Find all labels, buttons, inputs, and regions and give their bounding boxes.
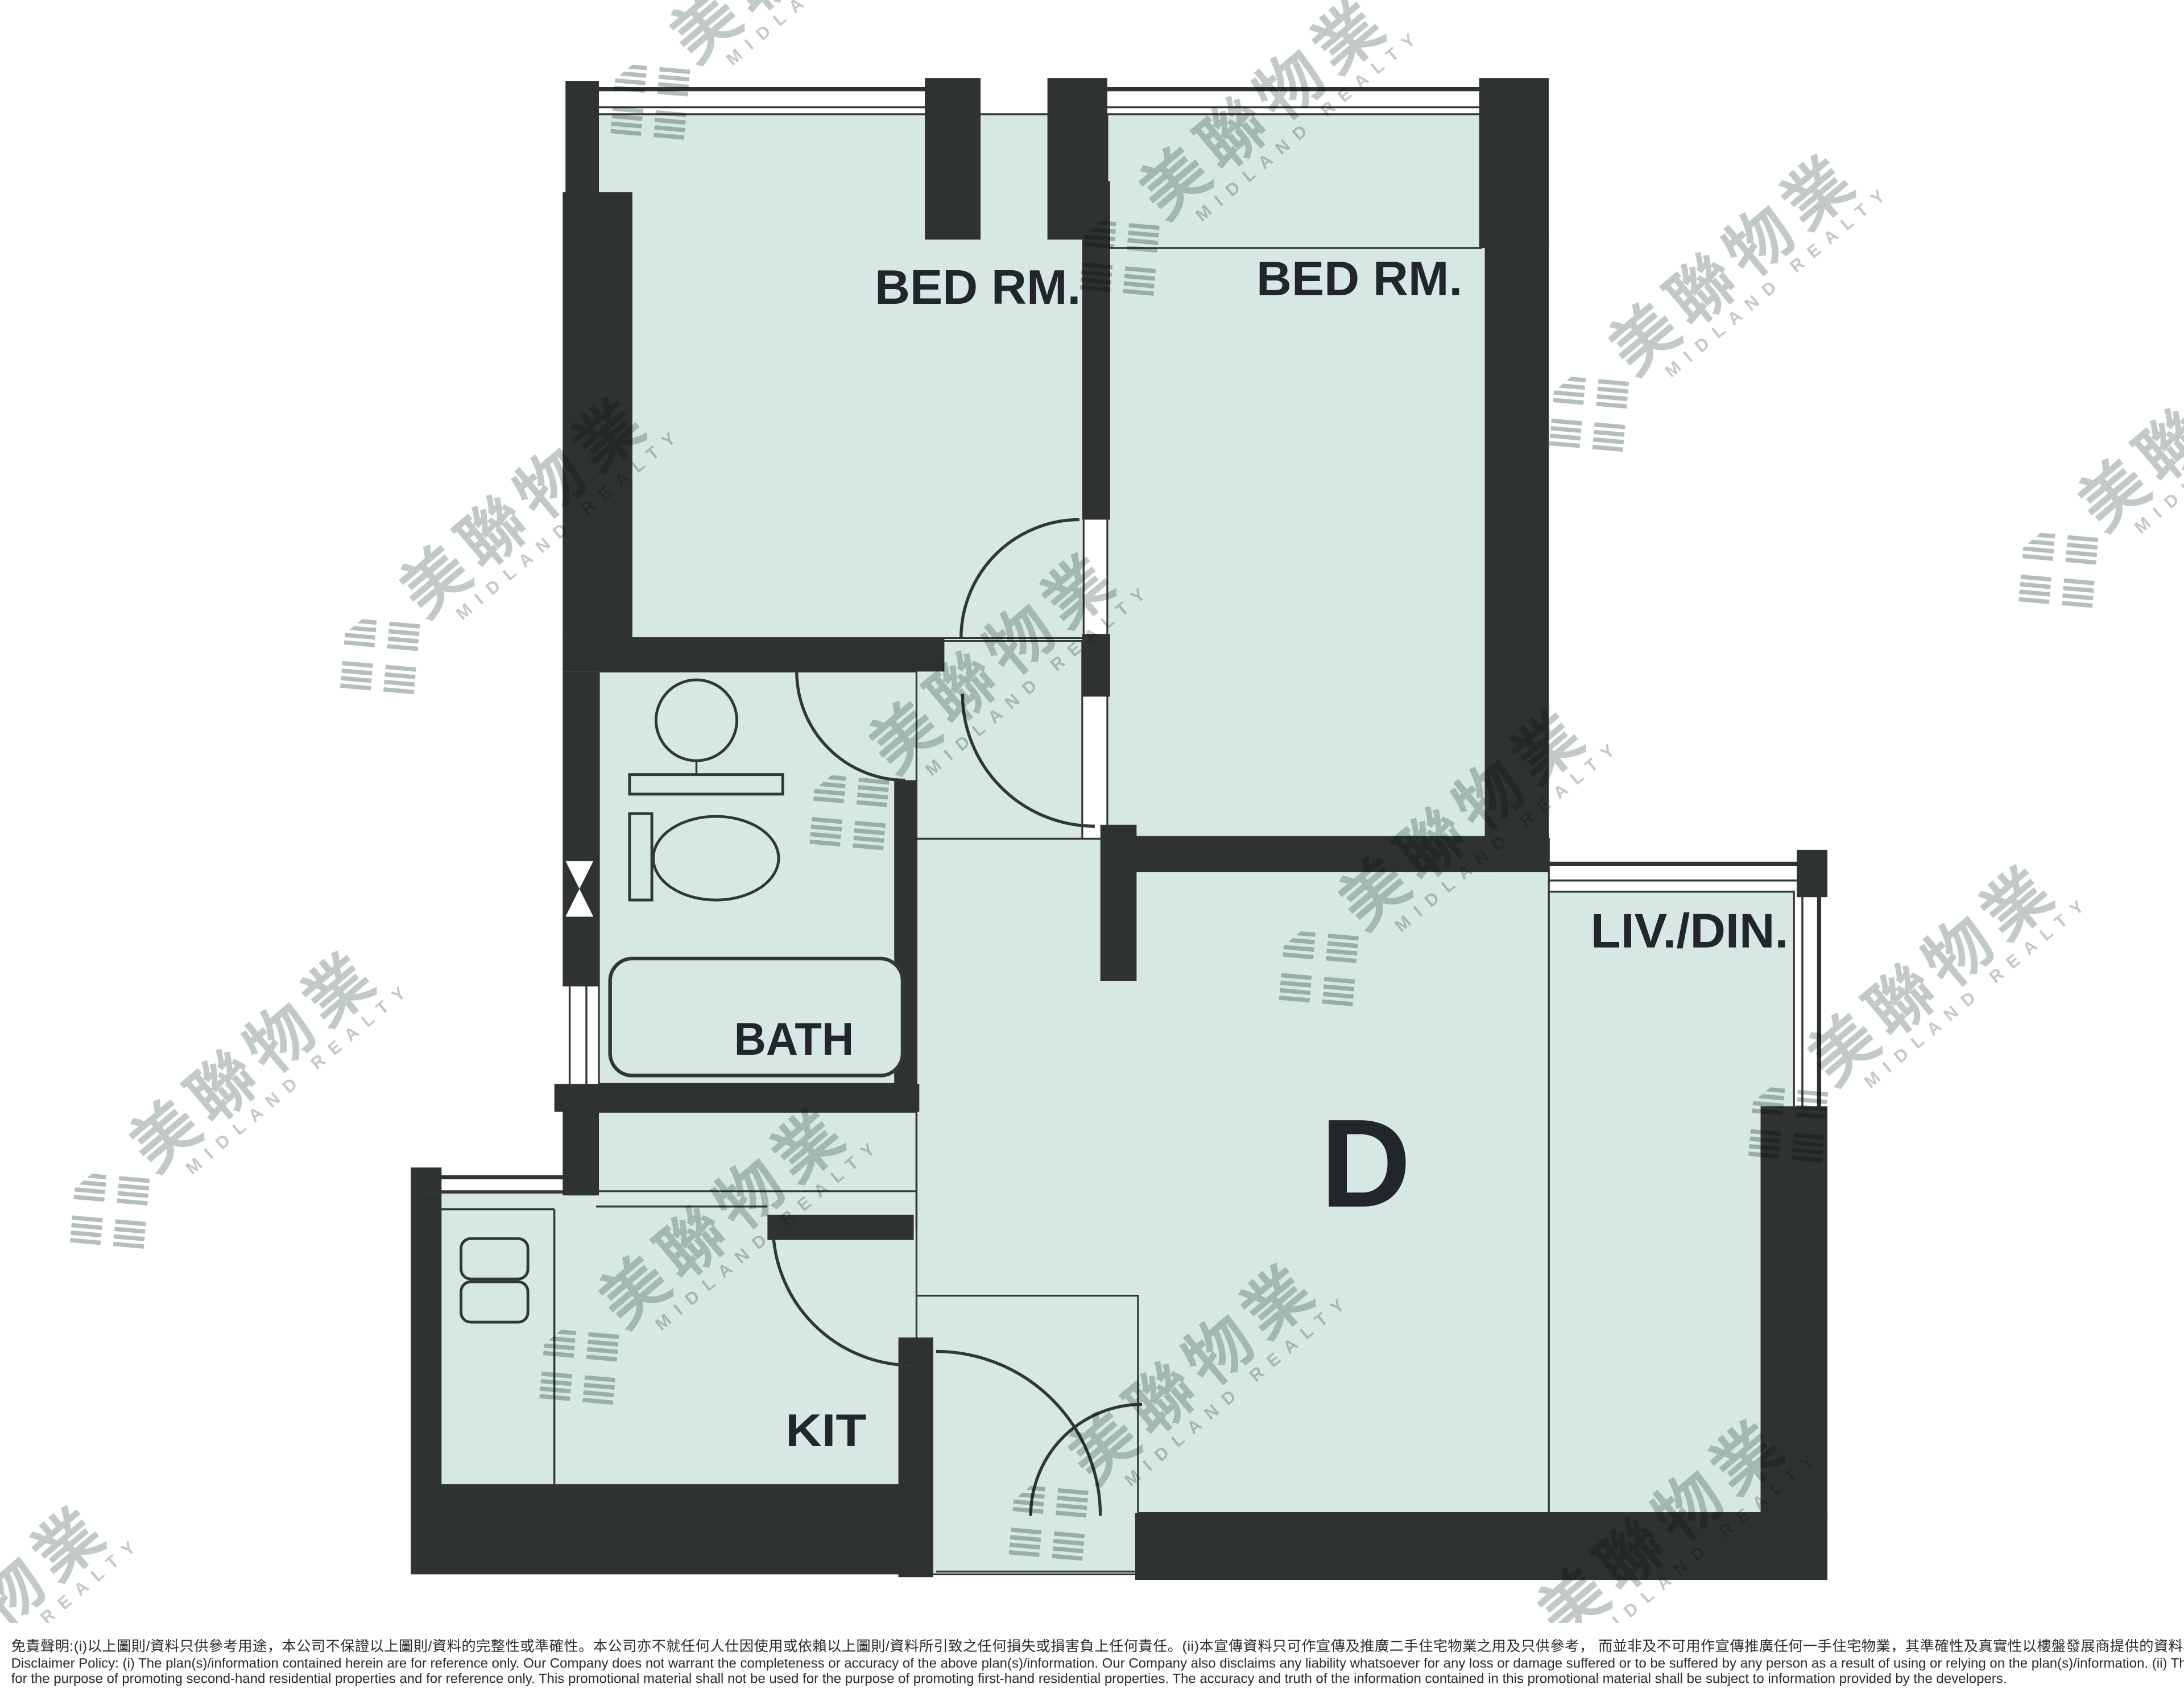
hall-floor	[916, 641, 1082, 850]
kitchen-unit-bottom-icon	[461, 1282, 528, 1322]
window-bathroom-left	[570, 986, 586, 1098]
kitchen-unit-top-icon	[461, 1238, 528, 1279]
floor-plan-page: BED RM. BED RM. LIV./DIN. BATH KIT D 美聯物…	[0, 0, 2184, 1701]
wall-bathroom-bottom	[555, 1084, 920, 1112]
living-dining-label: LIV./DIN.	[1591, 903, 1789, 958]
disclaimer-line-en-1: Disclaimer Policy: (i) The plan(s)/infor…	[11, 1658, 2179, 1673]
basin-icon	[656, 680, 737, 761]
wall-kitchen-top	[767, 1215, 913, 1240]
wall-right-pier	[1761, 1106, 1828, 1521]
living-dining-floor-east	[1549, 891, 1794, 1513]
entrance-floor	[916, 1296, 1137, 1575]
wall-bedroom2-bottom	[1107, 836, 1490, 872]
toilet-cistern-icon	[630, 814, 652, 900]
wall-lobby-right	[899, 1337, 933, 1577]
kitchen-label: KIT	[785, 1405, 866, 1456]
bedroom1-label: BED RM.	[875, 260, 1081, 315]
wall-kitchen-left	[411, 1167, 441, 1502]
floor-plan: BED RM. BED RM. LIV./DIN. BATH KIT D	[0, 0, 2184, 1701]
disclaimer: 免責聲明:(i)以上圖則/資料只供參考用途，本公司不保證以上圖則/資料的完整性或…	[11, 1638, 2179, 1688]
wall-kitchen-window-post	[568, 1149, 596, 1195]
wall-liv-corner-post	[1797, 850, 1827, 897]
vanity-counter	[630, 775, 783, 794]
wall-left-upper	[562, 192, 632, 641]
wall-bedroom2-right	[1485, 237, 1549, 872]
wall-bedroom1-bottom	[562, 638, 944, 672]
wall-top-right-pier	[1479, 78, 1549, 248]
wall-top-pier-a	[925, 78, 981, 240]
bedroom2-label: BED RM.	[1256, 251, 1462, 306]
wall-divider-mid	[1082, 634, 1110, 696]
wall-bathroom-left	[562, 671, 599, 986]
disclaimer-line-en-2: for the purpose of promoting second-hand…	[11, 1673, 2179, 1688]
wall-left-top-cap	[565, 81, 599, 198]
disclaimer-line-zh: 免責聲明:(i)以上圖則/資料只供參考用途，本公司不保證以上圖則/資料的完整性或…	[11, 1638, 2179, 1658]
toilet-bowl-icon	[653, 816, 779, 900]
bedroom2-floor	[1107, 114, 1490, 839]
wall-bottom-right	[1135, 1513, 1827, 1580]
bathroom-label: BATH	[734, 1014, 854, 1065]
wall-divider-upper	[1082, 181, 1110, 519]
wall-kitchen-bottom	[411, 1485, 919, 1575]
bedroom1-floor	[596, 114, 1083, 638]
unit-letter-label: D	[1321, 1093, 1411, 1233]
